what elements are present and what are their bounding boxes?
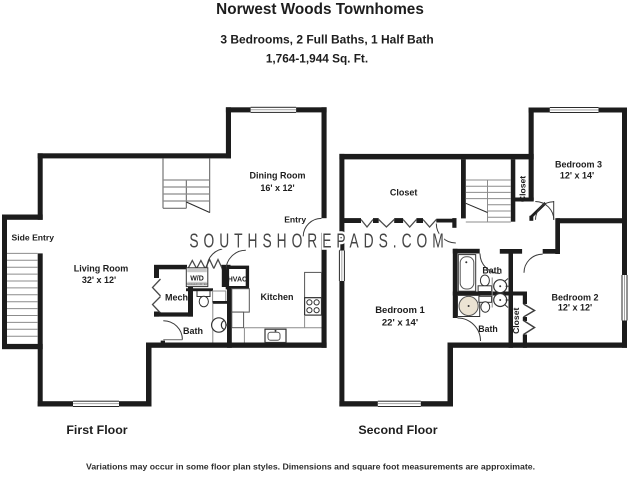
- svg-text:Bath: Bath: [478, 324, 498, 334]
- svg-text:Dining Room: Dining Room: [250, 171, 306, 181]
- svg-text:Kitchen: Kitchen: [260, 292, 293, 302]
- svg-text:16' x 12': 16' x 12': [260, 183, 294, 193]
- svg-text:Bedroom 1: Bedroom 1: [375, 305, 425, 316]
- svg-text:Bedroom 3: Bedroom 3: [555, 160, 602, 170]
- svg-text:HVAC: HVAC: [228, 277, 247, 284]
- svg-text:Closet: Closet: [511, 308, 521, 334]
- svg-text:Closet: Closet: [517, 176, 527, 202]
- svg-text:W/D: W/D: [190, 275, 204, 282]
- svg-text:Side Entry: Side Entry: [12, 233, 55, 243]
- svg-text:Norwest Woods Townhomes: Norwest Woods Townhomes: [216, 1, 424, 18]
- svg-text:3 Bedrooms, 2 Full Baths, 1 Ha: 3 Bedrooms, 2 Full Baths, 1 Half Bath: [220, 33, 433, 47]
- svg-text:Entry: Entry: [284, 215, 306, 225]
- svg-text:Second Floor: Second Floor: [358, 423, 437, 437]
- svg-text:Bath: Bath: [183, 326, 203, 336]
- svg-text:1,764-1,944 Sq. Ft.: 1,764-1,944 Sq. Ft.: [266, 51, 368, 65]
- svg-text:Living Room: Living Room: [74, 264, 129, 274]
- svg-text:Mech: Mech: [165, 293, 188, 303]
- svg-text:12' x 12': 12' x 12': [558, 303, 592, 313]
- svg-text:22' x 14': 22' x 14': [382, 318, 418, 329]
- svg-text:12' x 14': 12' x 14': [560, 170, 594, 180]
- svg-text:Variations may occur in some f: Variations may occur in some floor plan …: [86, 462, 535, 472]
- svg-text:WASHER DRYER: WASHER DRYER: [186, 282, 207, 286]
- svg-text:Bedroom 2: Bedroom 2: [551, 293, 598, 303]
- svg-text:Bath: Bath: [482, 266, 502, 276]
- svg-text:First Floor: First Floor: [66, 423, 127, 437]
- svg-text:SOUTHSHOREPADS.COM: SOUTHSHOREPADS.COM: [189, 229, 448, 252]
- svg-text:Closet: Closet: [390, 188, 418, 198]
- svg-text:32' x 12': 32' x 12': [82, 275, 116, 285]
